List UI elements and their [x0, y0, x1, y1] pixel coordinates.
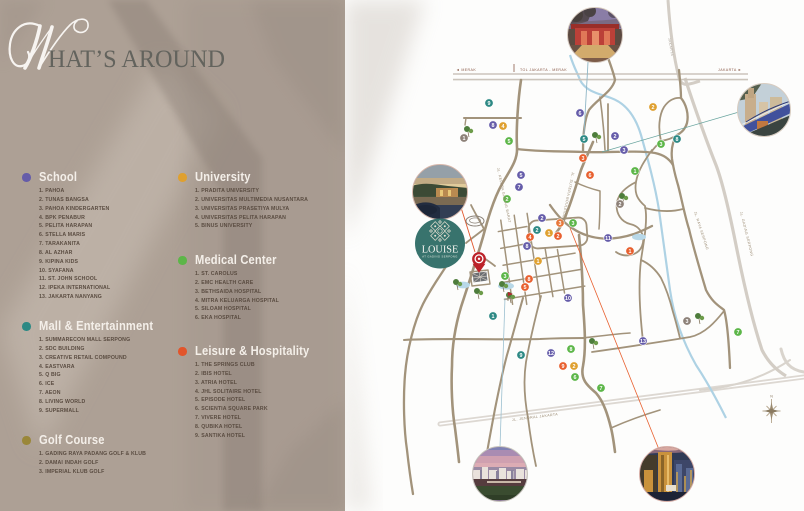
svg-text:1: 1: [463, 136, 466, 142]
svg-text:3: 3: [686, 319, 689, 325]
svg-text:TOL JAKARTA - MERAK: TOL JAKARTA - MERAK: [520, 68, 567, 72]
svg-text:1: 1: [492, 314, 495, 320]
svg-text:1: 1: [548, 231, 551, 237]
svg-text:2: 2: [614, 134, 617, 140]
svg-text:9: 9: [488, 101, 491, 107]
svg-text:AT GADING SERPONG: AT GADING SERPONG: [422, 255, 458, 259]
svg-text:8: 8: [528, 277, 531, 283]
svg-text:JL. GADING SERPONG: JL. GADING SERPONG: [739, 211, 754, 257]
svg-text:10: 10: [565, 296, 571, 302]
svg-text:8: 8: [492, 123, 495, 129]
svg-text:8: 8: [570, 347, 573, 353]
svg-text:7: 7: [518, 185, 521, 191]
svg-text:3: 3: [572, 221, 575, 227]
svg-text:6: 6: [579, 111, 582, 117]
svg-text:9: 9: [562, 364, 565, 370]
svg-text:3: 3: [623, 148, 626, 154]
svg-text:HAT’S AROUND: HAT’S AROUND: [48, 46, 225, 73]
svg-text:5: 5: [508, 139, 511, 145]
svg-text:5: 5: [583, 137, 586, 143]
svg-text:8: 8: [676, 137, 679, 143]
svg-text:2: 2: [536, 228, 539, 234]
svg-text:2: 2: [652, 105, 655, 111]
svg-text:7: 7: [600, 386, 603, 392]
svg-text:◄ MERAK: ◄ MERAK: [456, 68, 476, 72]
svg-text:12: 12: [548, 351, 554, 357]
svg-text:6: 6: [589, 173, 592, 179]
svg-text:1: 1: [634, 169, 637, 175]
svg-text:3: 3: [660, 142, 663, 148]
svg-text:N: N: [770, 395, 773, 399]
svg-text:1: 1: [537, 259, 540, 265]
svg-text:3: 3: [504, 274, 507, 280]
svg-text:8: 8: [526, 244, 529, 250]
svg-text:13: 13: [640, 339, 646, 345]
svg-text:LOUISE: LOUISE: [422, 245, 459, 256]
svg-text:3: 3: [559, 221, 562, 227]
svg-text:4: 4: [502, 124, 505, 130]
svg-text:7: 7: [737, 330, 740, 336]
svg-text:1: 1: [629, 249, 632, 255]
svg-text:2: 2: [573, 364, 576, 370]
svg-text:4: 4: [529, 235, 532, 241]
svg-text:3: 3: [582, 156, 585, 162]
svg-text:2: 2: [557, 234, 560, 240]
svg-text:JL. RAYA SERPONG: JL. RAYA SERPONG: [693, 211, 709, 250]
svg-text:2: 2: [541, 216, 544, 222]
svg-text:5: 5: [524, 285, 527, 291]
svg-text:JAKARTA ►: JAKARTA ►: [718, 68, 742, 72]
svg-text:9: 9: [520, 353, 523, 359]
svg-text:2: 2: [619, 202, 622, 208]
svg-text:11: 11: [605, 236, 611, 242]
svg-text:5: 5: [520, 173, 523, 179]
svg-text:6: 6: [574, 375, 577, 381]
